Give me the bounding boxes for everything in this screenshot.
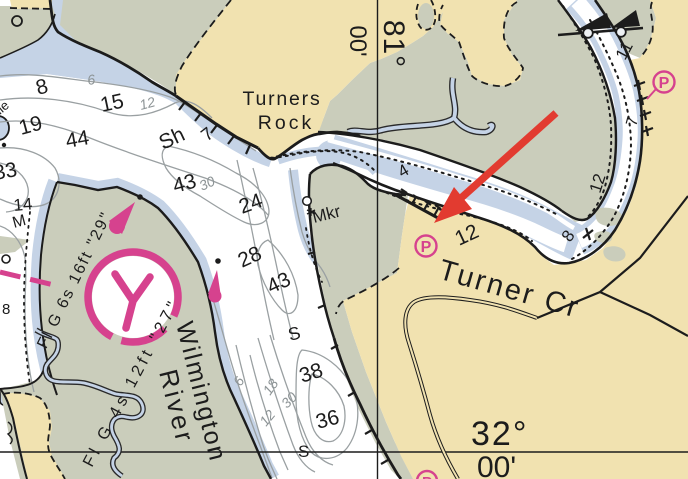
svg-text:00': 00' <box>477 451 516 479</box>
svg-text:Rock: Rock <box>258 112 314 134</box>
svg-text:44: 44 <box>64 126 91 153</box>
svg-text:P: P <box>659 75 670 92</box>
svg-text:8: 8 <box>2 301 10 318</box>
svg-text:Turners: Turners <box>242 88 321 110</box>
svg-text:81°: 81° <box>377 20 410 68</box>
svg-text:32°: 32° <box>471 415 528 453</box>
svg-text:00': 00' <box>344 25 371 56</box>
svg-text:P: P <box>422 474 432 479</box>
svg-text:15: 15 <box>98 90 126 117</box>
svg-text:P: P <box>421 239 432 256</box>
svg-text:S: S <box>298 442 309 461</box>
